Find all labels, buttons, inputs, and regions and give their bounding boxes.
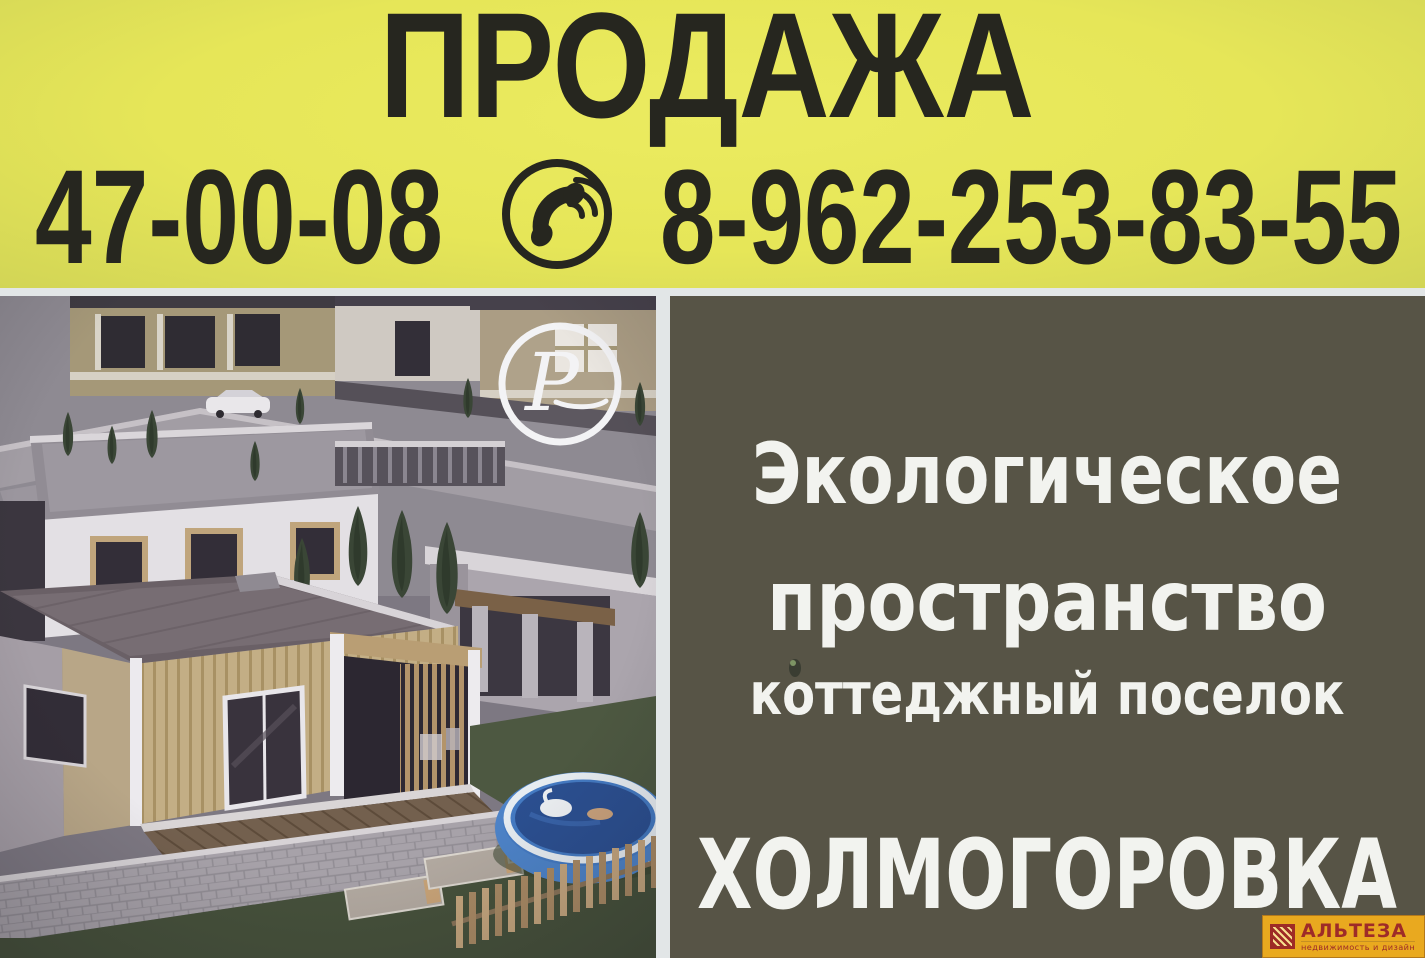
eco-line-2: пространство [767,552,1327,650]
altesa-logo: АЛЬТЕЗА недвижимость и дизайн [1262,915,1425,958]
sale-title: ПРОДАЖА [380,0,1035,149]
phone-mobile: 8-962-253-83-55 [660,143,1402,288]
phone-icon [506,163,608,265]
phone-landline: 47-00-08 [35,143,443,288]
photo-scene: P [0,296,656,958]
altesa-subtitle: недвижимость и дизайн [1301,941,1415,952]
billboard: ПРОДАЖА 47-00-08 8-962-253-83-55 [0,0,1425,958]
altesa-title: АЛЬТЕЗА [1301,921,1415,941]
village-photo: P [0,296,656,958]
altesa-blinds-icon [1270,924,1295,949]
header-yellow-band: ПРОДАЖА 47-00-08 8-962-253-83-55 [0,0,1425,288]
header-graphics: ПРОДАЖА 47-00-08 8-962-253-83-55 [0,0,1425,288]
eco-line-1: Экологическое [752,425,1342,523]
info-panel: Экологическое пространство коттеджный по… [670,296,1425,958]
panel-text-block: Экологическое пространство коттеджный по… [670,296,1425,958]
photo-vignette [0,296,656,958]
dirt-speck [789,659,801,677]
subtitle-line: коттеджный поселок [750,660,1345,728]
